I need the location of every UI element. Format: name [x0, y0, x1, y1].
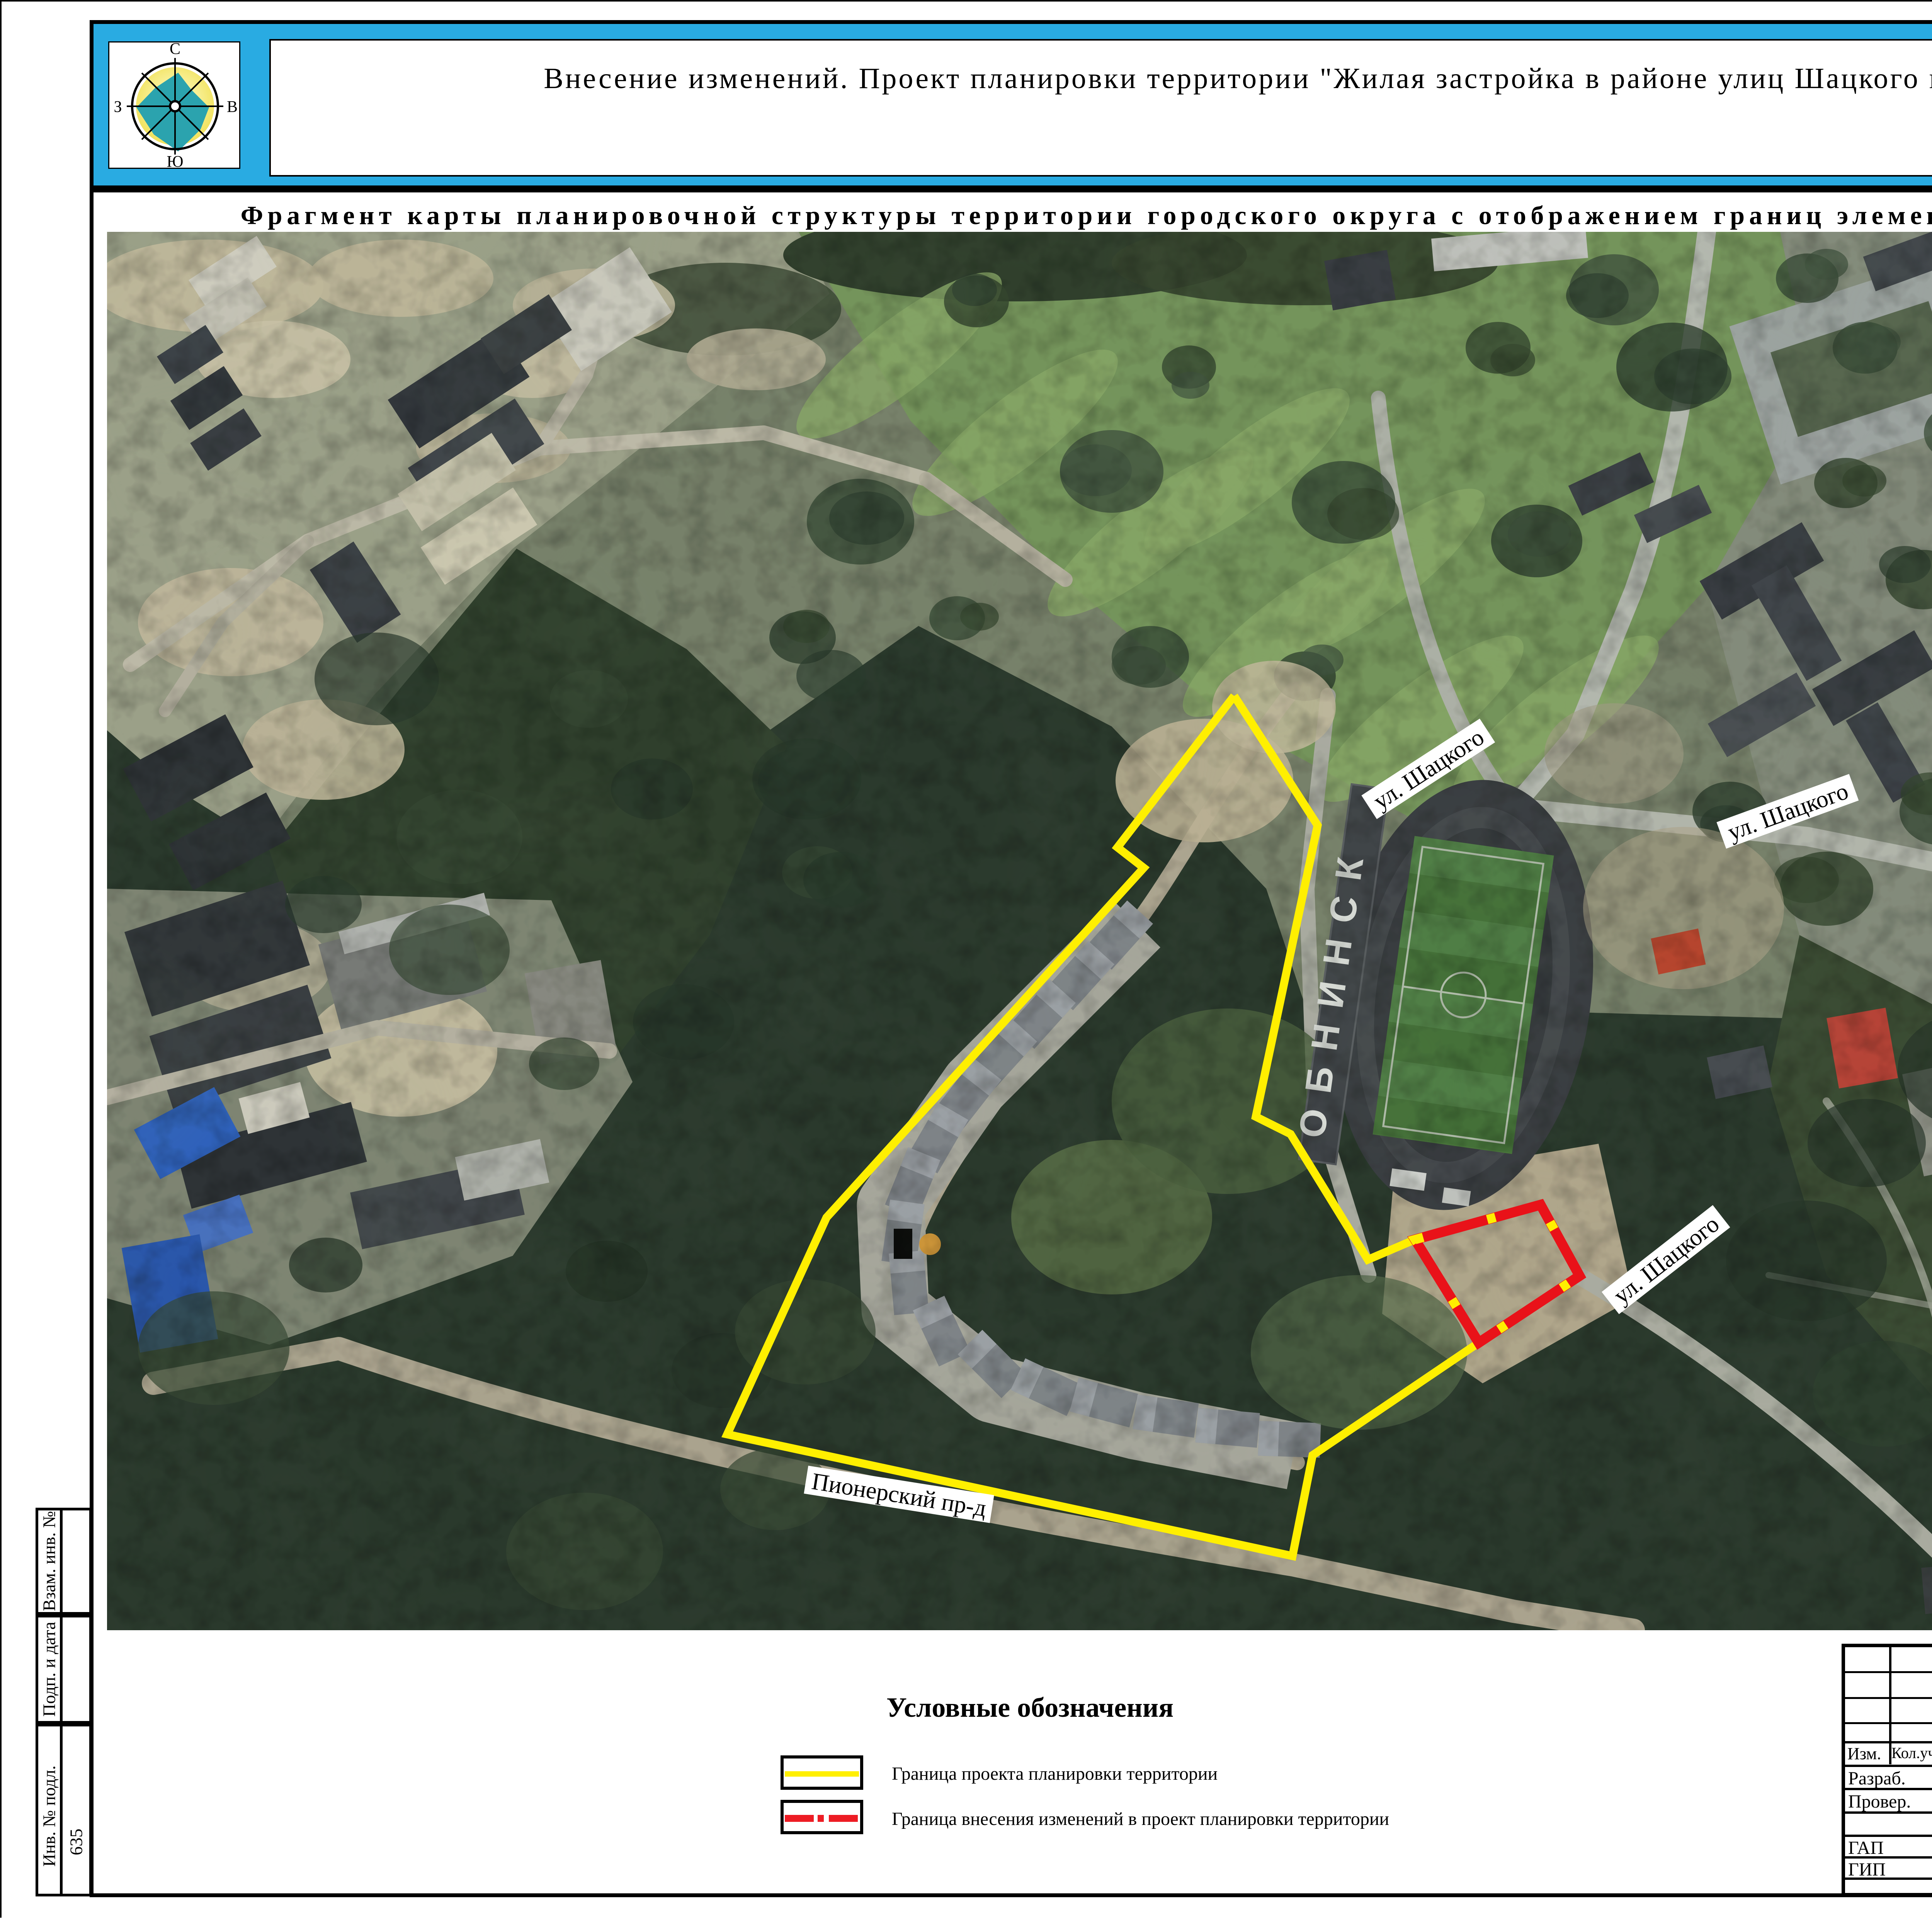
svg-text:Ю: Ю — [167, 153, 183, 168]
svg-text:С: С — [170, 43, 180, 58]
svg-text:В: В — [227, 98, 238, 116]
svg-text:З: З — [114, 98, 122, 116]
